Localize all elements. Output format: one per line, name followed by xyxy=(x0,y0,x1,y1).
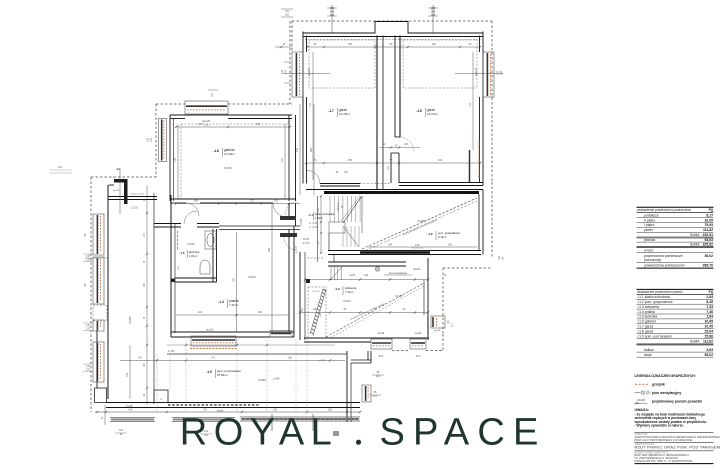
svg-text:RZUT PIWNIC ORAZ POM. POD TARA: RZUT PIWNIC ORAZ POM. POD TARASEM xyxy=(635,445,720,450)
svg-text:-/1.9 pom. pod tarasem: -/1.9 pom. pod tarasem xyxy=(637,334,672,338)
svg-text:80: 80 xyxy=(390,43,393,46)
svg-text:172: 172 xyxy=(309,102,312,107)
svg-text:16: 16 xyxy=(144,260,146,263)
svg-text:h=190: h=190 xyxy=(417,219,425,223)
svg-text:175: 175 xyxy=(174,157,177,162)
svg-text:125: 125 xyxy=(86,260,91,262)
svg-text:∠-0,76: ∠-0,76 xyxy=(302,242,310,245)
svg-text:25,86m²: 25,86m² xyxy=(217,373,228,377)
svg-text:±0,00: ±0,00 xyxy=(638,398,646,402)
svg-text:8,17: 8,17 xyxy=(706,213,713,217)
svg-text:79,93: 79,93 xyxy=(705,223,714,227)
svg-text:125: 125 xyxy=(285,14,290,17)
svg-text:93,03: 93,03 xyxy=(705,238,714,242)
svg-text:217: 217 xyxy=(373,395,378,398)
svg-text:258: 258 xyxy=(348,43,353,46)
svg-text:172: 172 xyxy=(469,102,472,107)
svg-text:-1.7: -1.7 xyxy=(328,109,334,113)
svg-text:SUMA: SUMA xyxy=(690,340,700,344)
svg-text:-/1.4 pralnia: -/1.4 pralnia xyxy=(637,310,655,314)
svg-text:325,92: 325,92 xyxy=(703,243,713,247)
svg-text:hpu12L: hpu12L xyxy=(206,330,214,332)
svg-text:h=177: h=177 xyxy=(395,294,403,298)
svg-text:170: 170 xyxy=(211,357,216,360)
svg-text:60: 60 xyxy=(502,256,505,259)
svg-text:63: 63 xyxy=(403,308,406,311)
svg-text:±0,00: ±0,00 xyxy=(303,238,310,241)
svg-text:-1.9: -1.9 xyxy=(206,370,212,374)
svg-text:projektowany poziom posadzki: projektowany poziom posadzki xyxy=(652,400,702,404)
svg-text:256: 256 xyxy=(348,159,353,162)
svg-text:10,45: 10,45 xyxy=(705,325,714,329)
svg-text:-/1.6 gabinet: -/1.6 gabinet xyxy=(637,320,656,324)
svg-text:164: 164 xyxy=(388,244,393,247)
svg-text:102: 102 xyxy=(119,430,124,432)
svg-text:h=230: h=230 xyxy=(258,378,266,382)
svg-text:hpu12L: hpu12L xyxy=(413,269,421,271)
svg-text:331: 331 xyxy=(438,159,443,162)
svg-text:∠-1,76: ∠-1,76 xyxy=(295,246,298,254)
svg-text:-/1.5 łazienka: -/1.5 łazienka xyxy=(637,315,657,319)
svg-text:-1.4: -1.4 xyxy=(218,300,224,304)
svg-text:h=233: h=233 xyxy=(129,316,132,324)
svg-text:188: 188 xyxy=(431,10,436,14)
svg-text:80: 80 xyxy=(383,143,386,146)
svg-text:-1.5: -1.5 xyxy=(180,251,185,255)
svg-text:hpu40: hpu40 xyxy=(113,190,120,192)
svg-text:14x17,2: 14x17,2 xyxy=(338,202,340,211)
svg-text:36: 36 xyxy=(336,172,339,174)
svg-text:7,46: 7,46 xyxy=(706,310,713,314)
svg-text:7,33: 7,33 xyxy=(706,305,713,309)
svg-text:25: 25 xyxy=(283,44,286,46)
svg-text:25,86: 25,86 xyxy=(705,334,714,338)
svg-text:289,70: 289,70 xyxy=(703,264,713,268)
svg-text:384: 384 xyxy=(194,200,199,203)
svg-text:taras: taras xyxy=(644,353,652,357)
svg-text:59,02: 59,02 xyxy=(705,353,714,357)
svg-text:h=217: h=217 xyxy=(248,275,256,279)
svg-text:188: 188 xyxy=(330,10,335,14)
svg-text:116: 116 xyxy=(274,200,278,203)
svg-text:80: 80 xyxy=(469,43,472,46)
svg-text:h=270: h=270 xyxy=(224,166,232,170)
svg-text:116: 116 xyxy=(198,311,202,314)
svg-text:-/1.1 klatka schodowa: -/1.1 klatka schodowa xyxy=(637,295,670,299)
svg-text:76: 76 xyxy=(314,159,317,162)
svg-text:hpu48: hpu48 xyxy=(126,406,133,408)
svg-text:-/1.8 garaż: -/1.8 garaż xyxy=(637,329,654,333)
svg-text:16: 16 xyxy=(144,316,146,319)
svg-text:10,69: 10,69 xyxy=(705,320,714,324)
svg-text:95: 95 xyxy=(374,391,377,394)
svg-text:SPACE: SPACE xyxy=(380,412,547,454)
svg-text:117: 117 xyxy=(250,200,254,203)
svg-text:2,84m²: 2,84m² xyxy=(315,216,323,220)
svg-text:160: 160 xyxy=(144,362,146,367)
svg-text:52: 52 xyxy=(160,399,163,401)
svg-text:60: 60 xyxy=(120,434,123,436)
svg-text:hpu48: hpu48 xyxy=(415,333,422,335)
svg-text:SUMA: SUMA xyxy=(690,233,700,237)
svg-text:parter: parter xyxy=(644,228,654,232)
svg-text:15,04m²: 15,04m² xyxy=(427,112,438,116)
svg-text:170: 170 xyxy=(144,232,146,237)
svg-text:DZIAŁKA NR 873, OBR. 9 - 71 JE: DZIAŁKA NR 873, OBR. 9 - 71 JEDNOSTKOWA xyxy=(635,459,693,463)
svg-text:125: 125 xyxy=(500,70,503,75)
svg-text:87: 87 xyxy=(344,308,347,311)
svg-text:- Wymiary sprawdzić w naturze.: - Wymiary sprawdzić w naturze. xyxy=(635,424,685,428)
svg-text:piwnica: piwnica xyxy=(644,238,655,242)
svg-text:111,82: 111,82 xyxy=(703,340,713,344)
svg-text:100: 100 xyxy=(318,207,320,212)
svg-text:125: 125 xyxy=(86,329,91,331)
svg-text:200: 200 xyxy=(258,311,263,314)
svg-text:pom. gospodarcze: pom. gospodarcze xyxy=(438,231,461,235)
svg-text:-1.6: -1.6 xyxy=(213,149,219,153)
svg-text:203: 203 xyxy=(376,375,381,378)
svg-text:125: 125 xyxy=(86,370,91,372)
svg-text:30: 30 xyxy=(395,145,398,148)
svg-text:1,50: 1,50 xyxy=(415,245,420,247)
svg-text:97/2: 97/2 xyxy=(416,356,421,358)
svg-text:10,45m²: 10,45m² xyxy=(339,112,350,116)
svg-text:-1.1: -1.1 xyxy=(308,213,313,217)
svg-text:powierzchnia pomieszczeń: powierzchnia pomieszczeń xyxy=(644,264,685,268)
svg-text:153: 153 xyxy=(178,265,180,269)
svg-text:posadzka spadek w kierunku odp: posadzka spadek w kierunku odpływu xyxy=(350,302,387,321)
svg-text:246: 246 xyxy=(256,123,261,126)
svg-text:ROYAL: ROYAL xyxy=(180,412,339,454)
svg-text:-/1.3 kotłownia: -/1.3 kotłownia xyxy=(637,305,659,309)
svg-text:7,46m²: 7,46m² xyxy=(229,303,238,307)
svg-text:łazienka: łazienka xyxy=(189,250,200,254)
svg-text:90: 90 xyxy=(84,233,87,236)
svg-text:pion wentylacyjny: pion wentylacyjny xyxy=(389,272,409,275)
svg-text:168: 168 xyxy=(288,357,293,360)
svg-text:∠ -2,03: ∠ -2,03 xyxy=(309,222,318,225)
svg-text:80: 80 xyxy=(314,43,317,46)
svg-text:60: 60 xyxy=(447,320,450,323)
svg-text:190: 190 xyxy=(448,244,453,247)
svg-text:10,69m²: 10,69m² xyxy=(224,152,235,156)
svg-text:95: 95 xyxy=(377,371,380,374)
svg-text:hpu128: hpu128 xyxy=(309,67,311,75)
svg-text:kotłownia: kotłownia xyxy=(345,286,357,290)
svg-text:142: 142 xyxy=(138,357,143,360)
svg-text:6,49m²: 6,49m² xyxy=(438,235,446,239)
svg-text:h=217: h=217 xyxy=(343,299,351,303)
svg-text:1,76: 1,76 xyxy=(204,124,209,127)
svg-text:h=225: h=225 xyxy=(300,218,303,225)
svg-text:176: 176 xyxy=(198,123,203,126)
svg-text:318: 318 xyxy=(646,394,650,396)
svg-text:I piętro: I piętro xyxy=(644,223,654,227)
svg-text:-1.3: -1.3 xyxy=(334,287,340,291)
svg-text:pion wentylacyjny: pion wentylacyjny xyxy=(652,391,681,395)
svg-text:125: 125 xyxy=(147,137,150,142)
svg-text:4,40: 4,40 xyxy=(128,409,133,412)
svg-text:318: 318 xyxy=(364,274,369,277)
svg-text:90: 90 xyxy=(102,416,104,419)
svg-text:-/1.2 pom. gospodarcze: -/1.2 pom. gospodarcze xyxy=(637,300,673,304)
svg-text:207: 207 xyxy=(344,172,349,174)
svg-text:-1.8: -1.8 xyxy=(416,109,422,113)
svg-text:40: 40 xyxy=(444,274,447,277)
svg-text:170: 170 xyxy=(86,366,91,368)
svg-text:232,91: 232,91 xyxy=(703,233,713,237)
svg-text:7,33m²: 7,33m² xyxy=(345,290,353,294)
svg-text:112: 112 xyxy=(211,92,214,96)
svg-text:P(): P() xyxy=(709,290,713,294)
svg-text:hpu128: hpu128 xyxy=(202,120,211,123)
svg-text:II piętro: II piętro xyxy=(644,218,655,222)
svg-text:96: 96 xyxy=(318,241,320,244)
svg-text:257: 257 xyxy=(233,277,236,282)
svg-text:h=215: h=215 xyxy=(187,243,195,246)
svg-text:140: 140 xyxy=(126,372,129,377)
svg-text:90: 90 xyxy=(144,198,146,201)
svg-text:111,82: 111,82 xyxy=(703,228,713,232)
svg-text:260: 260 xyxy=(432,43,437,46)
svg-text:263: 263 xyxy=(268,247,271,252)
svg-text:97/2: 97/2 xyxy=(379,356,384,358)
svg-text:365: 365 xyxy=(310,147,313,152)
svg-text:balkon: balkon xyxy=(644,348,654,352)
svg-text:-/1.7 garaż: -/1.7 garaż xyxy=(637,325,654,329)
svg-text:117: 117 xyxy=(451,322,454,326)
svg-text:1,84m²: 1,84m² xyxy=(189,254,197,258)
svg-text:160: 160 xyxy=(320,312,322,316)
svg-text:200: 200 xyxy=(144,282,146,287)
svg-text:hpu48: hpu48 xyxy=(434,330,441,332)
svg-text:170: 170 xyxy=(150,137,153,142)
svg-text:∠-2,0%: ∠-2,0% xyxy=(312,290,320,293)
svg-text:241: 241 xyxy=(281,157,284,162)
svg-text:120: 120 xyxy=(313,308,318,311)
svg-text:1,84: 1,84 xyxy=(706,315,713,319)
svg-text:58: 58 xyxy=(390,159,393,162)
svg-text:∠-2,03: ∠-2,03 xyxy=(130,207,138,210)
svg-text:15,04: 15,04 xyxy=(705,329,714,333)
svg-text:hpu128: hpu128 xyxy=(476,67,478,75)
svg-text:3,63: 3,63 xyxy=(706,348,713,352)
svg-text:+8,0: +8,0 xyxy=(58,167,63,169)
svg-text:(schodowy): (schodowy) xyxy=(644,258,661,262)
svg-text:PRET-ULICY PRZYWIDZKIEGO 3 W K: PRET-ULICY PRZYWIDZKIEGO 3 W KRAKOWIE xyxy=(635,438,693,442)
svg-text:grzejnik: grzejnik xyxy=(652,382,665,386)
svg-text:170: 170 xyxy=(86,256,91,258)
svg-text:LEGENDA OZNACZEŃ GRAFICZNYCH:: LEGENDA OZNACZEŃ GRAFICZNYCH: xyxy=(635,373,696,378)
svg-text:90: 90 xyxy=(84,283,87,286)
svg-text:6,49: 6,49 xyxy=(706,300,713,304)
svg-text:∠ -0,76: ∠ -0,76 xyxy=(309,226,318,229)
svg-text:zestawienie powierzchni powier: zestawienie powierzchni powierzchni xyxy=(637,208,691,212)
svg-text:188: 188 xyxy=(330,13,335,17)
svg-text:w tym:: w tym: xyxy=(644,249,654,253)
svg-text:hpu48: hpu48 xyxy=(378,333,385,335)
svg-text:310: 310 xyxy=(296,147,299,152)
svg-text:∠-163: ∠-163 xyxy=(168,350,176,353)
svg-text:∠240: ∠240 xyxy=(273,377,280,381)
svg-text:190: 190 xyxy=(404,143,409,146)
svg-text:zestawienie powierzchni piwnic: zestawienie powierzchni piwnic xyxy=(637,290,683,294)
svg-text:∠226: ∠226 xyxy=(349,274,356,277)
svg-text:170: 170 xyxy=(86,325,91,327)
svg-text:2,84: 2,84 xyxy=(706,295,713,299)
svg-text:90: 90 xyxy=(144,393,146,396)
svg-text:115: 115 xyxy=(388,165,390,169)
svg-text:36,02: 36,02 xyxy=(705,254,714,258)
svg-text:poddasze: poddasze xyxy=(644,213,659,217)
svg-text:32,09: 32,09 xyxy=(705,218,714,222)
svg-text:3,5x3 ∠12,03: 3,5x3 ∠12,03 xyxy=(130,193,144,196)
svg-text:P(): P() xyxy=(709,208,713,212)
svg-text:SUMA: SUMA xyxy=(690,243,700,247)
svg-text:188: 188 xyxy=(431,13,436,17)
svg-text:-1.2: -1.2 xyxy=(427,232,433,236)
svg-text:280: 280 xyxy=(302,307,304,311)
